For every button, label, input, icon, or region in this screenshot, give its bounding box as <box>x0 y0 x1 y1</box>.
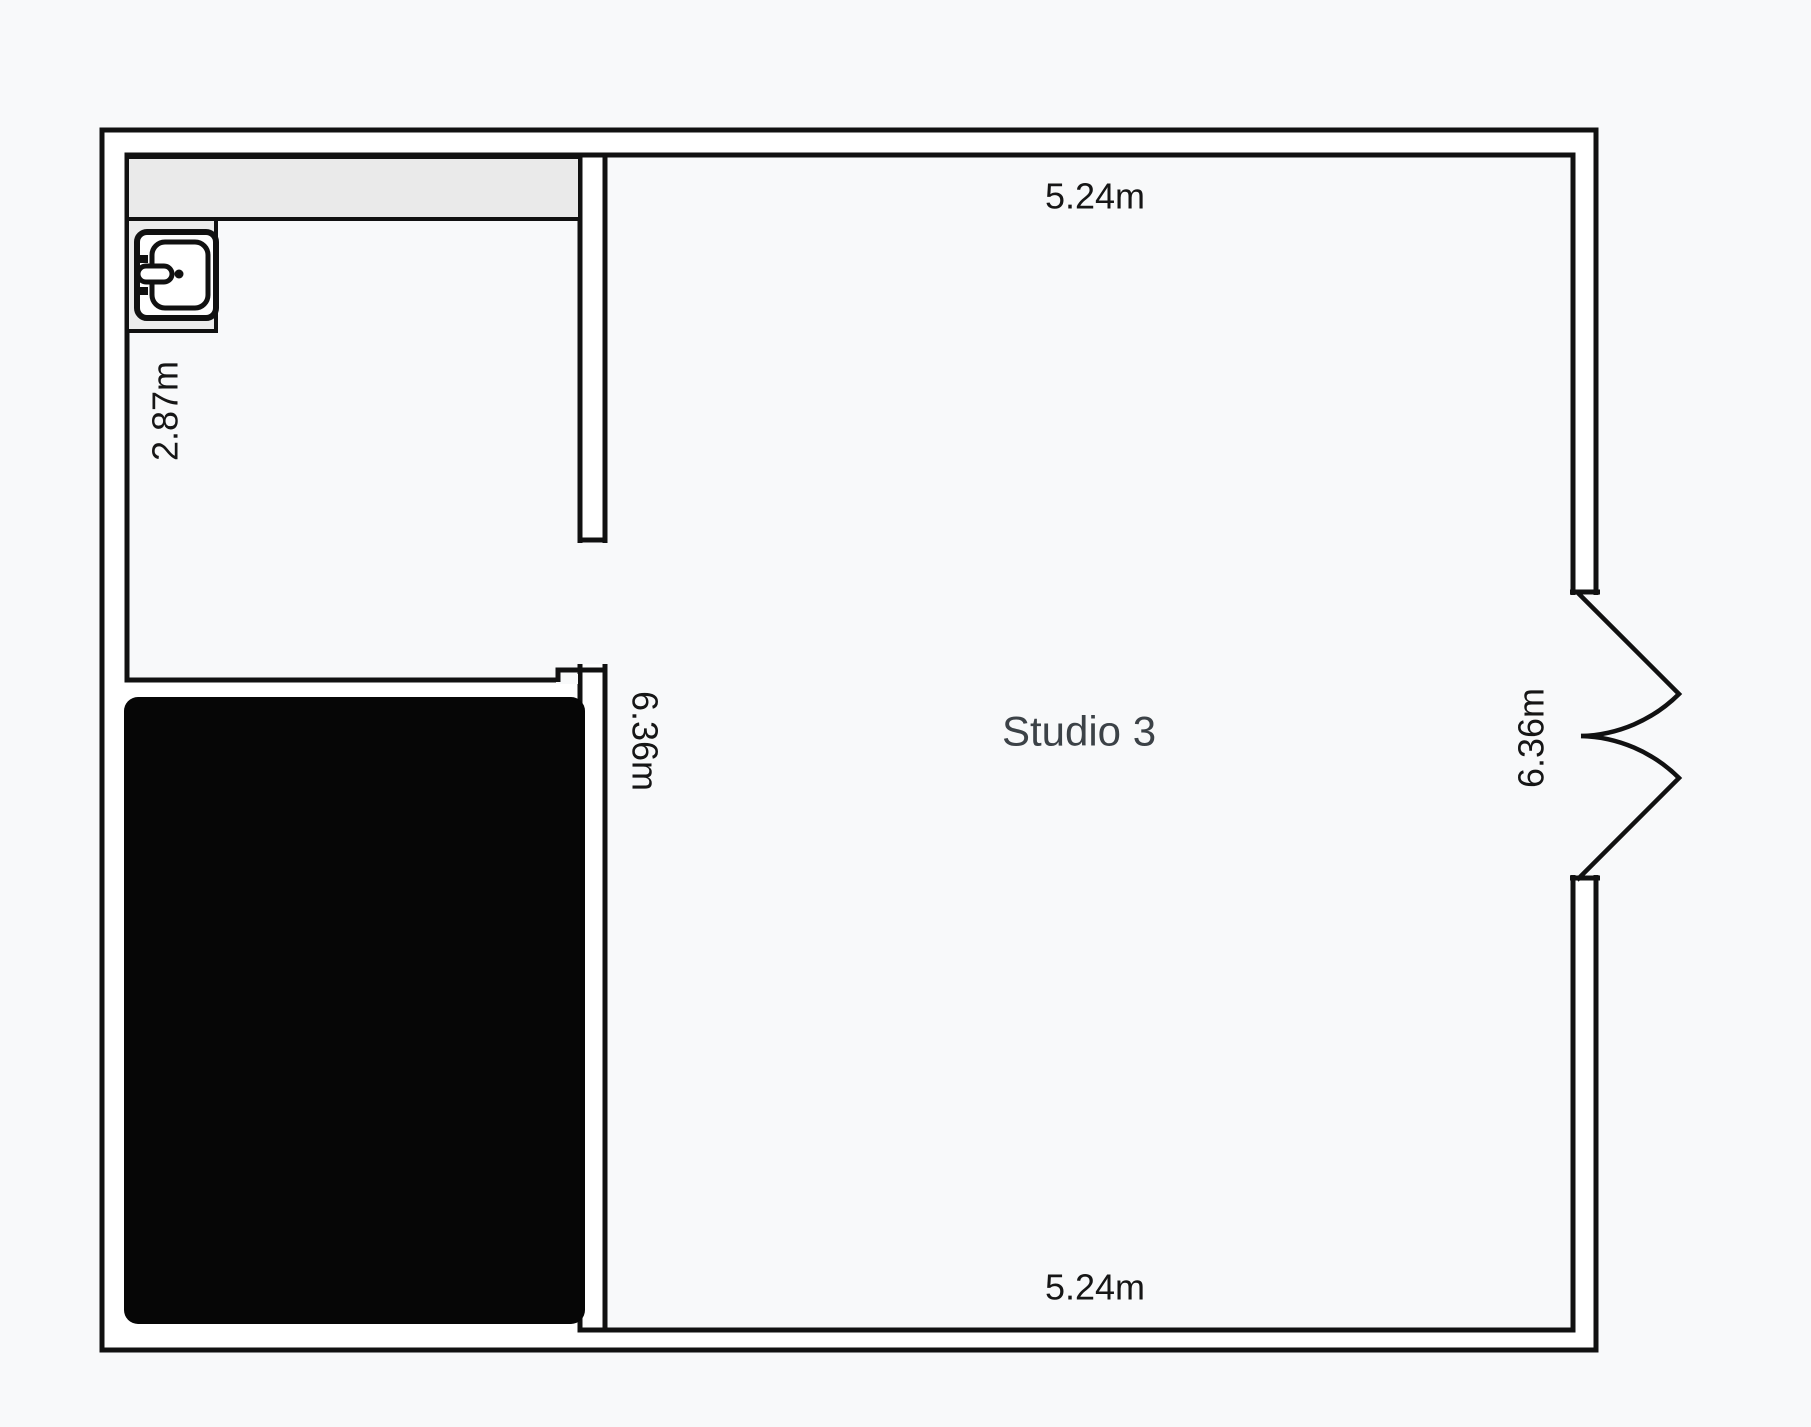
faucet-handle <box>138 266 172 282</box>
faucet-valve-top <box>140 255 148 263</box>
dimension-bottom-width: 5.24m <box>1045 1267 1145 1308</box>
dimension-left-section-width: 2.87m <box>145 361 186 461</box>
room-label: Studio 3 <box>1002 708 1156 755</box>
sink-icon <box>137 232 216 318</box>
dimension-inner-left-height: 6.36m <box>625 691 666 791</box>
dimension-top-width: 5.24m <box>1045 176 1145 217</box>
blacked-out-room <box>124 697 585 1324</box>
dimension-right-height: 6.36m <box>1511 688 1552 788</box>
counter-strip <box>127 157 580 219</box>
drain-dot <box>175 270 184 279</box>
floor-plan: 5.24m 5.24m 6.36m 6.36m 2.87m Studio 3 <box>0 0 1811 1427</box>
faucet-valve-bottom <box>140 287 148 295</box>
interior-opening <box>570 543 615 664</box>
partition-wall-upper <box>580 155 605 540</box>
